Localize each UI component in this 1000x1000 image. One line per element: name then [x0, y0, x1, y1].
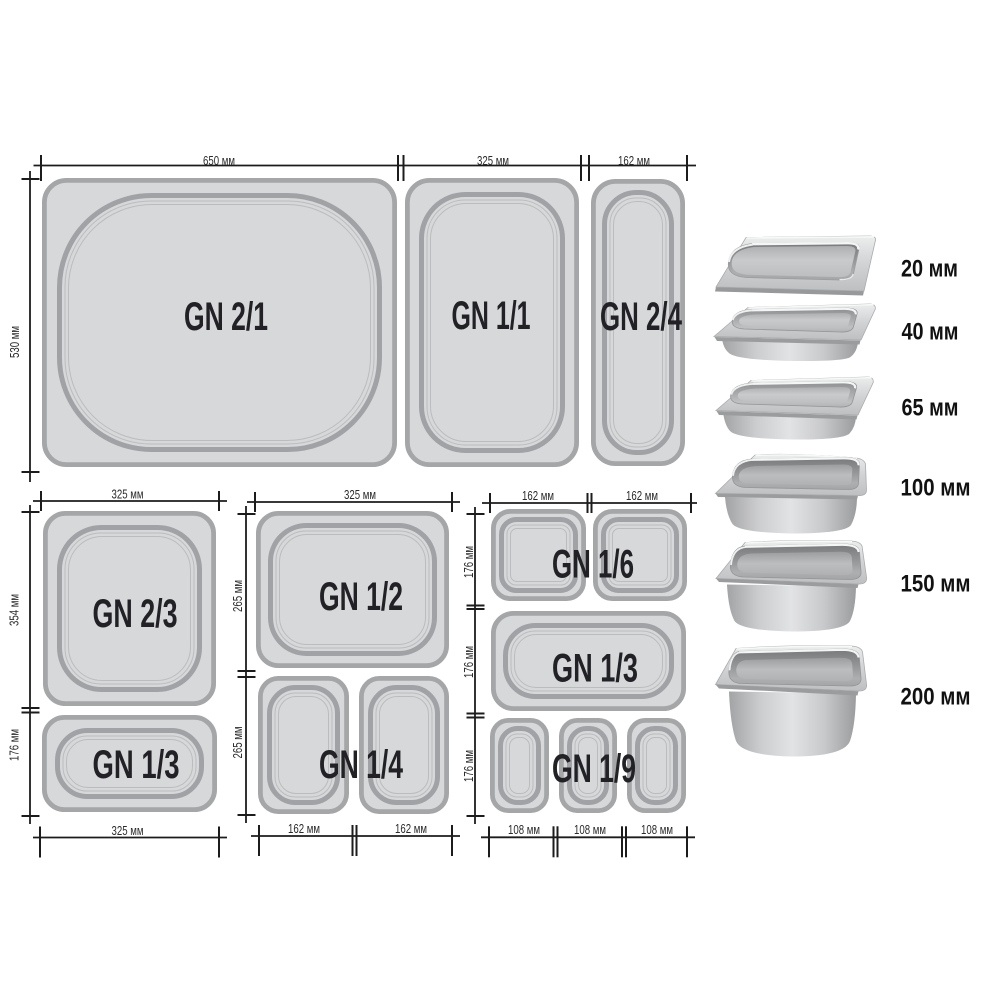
svg-text:176 мм: 176 мм [8, 729, 22, 761]
svg-text:GN 1/3: GN 1/3 [552, 647, 638, 691]
svg-text:108 мм: 108 мм [574, 823, 606, 837]
svg-text:325 мм: 325 мм [112, 824, 144, 838]
svg-text:GN 2/1: GN 2/1 [184, 295, 268, 339]
svg-text:65 мм: 65 мм [902, 395, 959, 422]
svg-text:176 мм: 176 мм [462, 750, 476, 782]
svg-text:176 мм: 176 мм [462, 546, 476, 578]
svg-text:162 мм: 162 мм [395, 822, 427, 836]
svg-text:GN 2/3: GN 2/3 [93, 592, 178, 636]
svg-text:GN 2/4: GN 2/4 [600, 295, 682, 339]
svg-text:162 мм: 162 мм [522, 489, 554, 503]
svg-text:GN 1/2: GN 1/2 [319, 575, 403, 619]
svg-text:650 мм: 650 мм [203, 154, 235, 168]
svg-text:40 мм: 40 мм [902, 319, 959, 346]
svg-text:162 мм: 162 мм [288, 822, 320, 836]
svg-text:162 мм: 162 мм [618, 154, 650, 168]
svg-text:265 мм: 265 мм [231, 727, 245, 759]
svg-text:GN 1/6: GN 1/6 [552, 543, 634, 587]
svg-text:GN 1/1: GN 1/1 [452, 294, 531, 338]
svg-text:325 мм: 325 мм [112, 488, 144, 502]
svg-text:108 мм: 108 мм [641, 823, 673, 837]
svg-text:325 мм: 325 мм [344, 488, 376, 502]
svg-text:GN 1/3: GN 1/3 [93, 743, 180, 787]
svg-text:GN 1/4: GN 1/4 [319, 743, 403, 787]
svg-text:162 мм: 162 мм [626, 489, 658, 503]
svg-text:325 мм: 325 мм [477, 154, 509, 168]
svg-text:530 мм: 530 мм [8, 326, 22, 358]
svg-text:200 мм: 200 мм [901, 684, 971, 711]
svg-text:GN 1/9: GN 1/9 [552, 747, 636, 791]
svg-text:100 мм: 100 мм [901, 475, 971, 502]
svg-text:108 мм: 108 мм [508, 823, 540, 837]
svg-text:354 мм: 354 мм [8, 594, 22, 626]
svg-text:265 мм: 265 мм [231, 580, 245, 612]
svg-text:176 мм: 176 мм [462, 646, 476, 678]
svg-text:20 мм: 20 мм [901, 256, 958, 283]
svg-text:150 мм: 150 мм [901, 571, 971, 598]
